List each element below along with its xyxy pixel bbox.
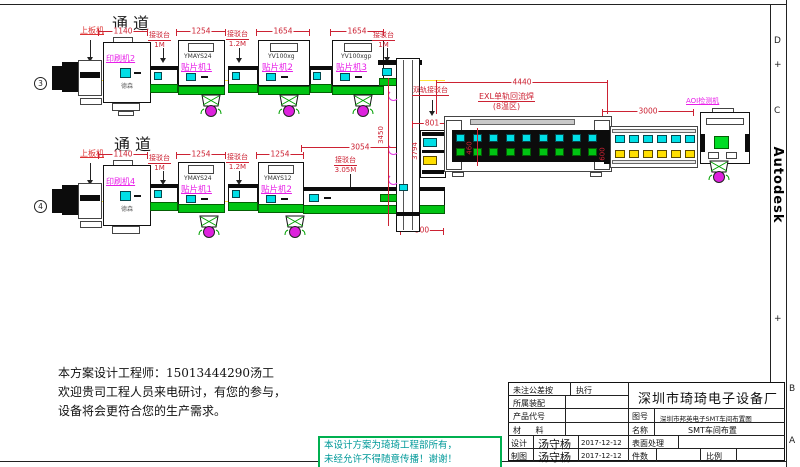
- pcb-dash: [281, 198, 288, 200]
- loader-machine-row2: [52, 189, 62, 213]
- pcb-dash: [201, 198, 208, 200]
- tb-line: [700, 448, 701, 461]
- reflow-zone-bottom: [555, 148, 564, 156]
- loader-arrow-row2: [90, 163, 91, 183]
- cooling-slot-cyan: [615, 135, 625, 143]
- mounter3-label-row1: 贴片机3: [336, 61, 367, 73]
- cad-drawing-canvas: D C + + B A Autodesk 通道 3 上板机 1140 印刷机2 …: [0, 0, 800, 467]
- pcb-marker: [340, 73, 350, 81]
- tb-draft-label: 制图: [511, 451, 527, 462]
- shuttle-bar: [422, 132, 444, 136]
- dim-3450-vertical: 3450: [377, 126, 385, 144]
- long-connector-label-row2: 接驳台3.05M: [334, 156, 357, 175]
- pcb-marker: [120, 191, 131, 201]
- reflow-zone-bottom: [522, 148, 531, 156]
- cooling-slot-yellow: [643, 150, 653, 158]
- conveyor-top-bar: [303, 187, 445, 191]
- pcb-marker: [313, 72, 321, 80]
- connector3-label-row1: 接驳台1M: [372, 31, 395, 50]
- tb-design-date: 2017-12-12: [581, 439, 622, 447]
- aoi-cart: [706, 160, 732, 184]
- tb-line: [678, 435, 679, 448]
- loader-machine-row1: [52, 66, 62, 90]
- cooling-bottom-rail: [612, 160, 696, 164]
- mounter1-label-row1: 贴片机1: [181, 61, 212, 73]
- conveyor-top-bar: [228, 184, 258, 188]
- cooling-slot-cyan: [671, 135, 681, 143]
- pcb-marker: [232, 72, 240, 80]
- reflow-label: EXL单轨回流焊(8温区): [478, 92, 535, 111]
- mounter2-model-row2: YMAYS12: [264, 175, 292, 182]
- frame-top-line: [0, 4, 786, 5]
- conveyor-top-bar: [150, 66, 178, 70]
- printer-brand-row2: 德森: [121, 204, 133, 213]
- aoi-top-bar: [706, 118, 744, 125]
- pcb-marker: [266, 195, 276, 203]
- tb-company: 深圳市琦琦电子设备厂: [638, 388, 778, 407]
- conveyor-green-rail: [178, 204, 225, 213]
- connector1-arrow-row2: [163, 171, 164, 183]
- tb-product-code: 产品代号: [513, 411, 545, 422]
- dim-3794-vertical: 3794: [411, 142, 419, 160]
- zone-plus-top: +: [774, 60, 782, 70]
- printer-label-row2: 印刷机4: [106, 176, 135, 187]
- loader-machine-row1: [78, 60, 102, 96]
- dim-3000-cooling: 3000: [602, 111, 694, 112]
- pcb-marker: [309, 194, 319, 202]
- conveyor-green-rail: [150, 202, 178, 211]
- feeder-cart: [350, 94, 376, 118]
- reflow-zone-bottom: [489, 148, 498, 156]
- connector2-label-row2: 接驳台1.2M: [226, 153, 249, 172]
- cooling-slot-yellow: [629, 150, 639, 158]
- reflow-zone-bottom: [572, 148, 581, 156]
- loader-machine-row2: [78, 183, 102, 219]
- connector2-arrow-row2: [239, 171, 240, 183]
- reflow-zone-bottom: [588, 148, 597, 156]
- reflow-zone-top: [572, 134, 581, 142]
- mounter-monitor: [270, 43, 298, 52]
- tb-tolerance: 未注公差按: [513, 385, 553, 396]
- tb-fig-number: 深圳市邦英电子SMT车间布置图: [660, 413, 752, 423]
- mounter1-model-row1: YMAYS24: [184, 53, 212, 60]
- pcb-dash: [134, 195, 141, 197]
- printer-label-row1: 印刷机2: [106, 53, 135, 64]
- mounter1-model-row2: YMAYS24: [184, 175, 212, 182]
- feeder-cart: [196, 215, 222, 239]
- tb-line: [736, 448, 737, 461]
- note-line2: 欢迎贵司工程人员来电研讨，有您的参与，: [58, 383, 286, 402]
- reflow-leg: [590, 172, 602, 177]
- connector1-label-row1: 接驳台1M: [148, 31, 171, 50]
- pcb-dash: [324, 197, 331, 199]
- reflow-zone-bottom: [506, 148, 515, 156]
- tb-design-label: 设计: [511, 438, 527, 449]
- pcb-marker: [266, 73, 276, 81]
- tb-line: [654, 408, 655, 435]
- cooling-slot-yellow: [685, 150, 695, 158]
- dim-1254-row2a: 1254: [176, 154, 226, 155]
- printer-brand-row1: 德森: [121, 81, 133, 90]
- zone-letter-b: B: [789, 384, 795, 394]
- mounter3-model-row1: YV100xgp: [341, 53, 371, 60]
- mounter-monitor: [268, 165, 294, 174]
- mounter1-label-row2: 贴片机1: [181, 183, 212, 195]
- mounter-monitor: [344, 43, 372, 52]
- aoi-side-bar: [745, 134, 750, 152]
- cooling-top-rail: [612, 129, 696, 133]
- dim-1654-row1a: 1654: [256, 31, 310, 32]
- mounter-monitor: [188, 165, 214, 174]
- reflow-zone-top: [456, 134, 465, 142]
- vertical-rail: [403, 60, 404, 230]
- pcb-dash: [134, 72, 141, 74]
- pcb-dash: [355, 76, 362, 78]
- conveyor-green-rail: [258, 204, 304, 213]
- reflow-zone-bottom: [539, 148, 548, 156]
- zone-letter-d: D: [774, 36, 781, 46]
- designer-note: 本方案设计工程师：15013444290汤工 欢迎贵司工程人员来电研讨，有您的参…: [58, 364, 286, 421]
- conveyor-top-bar: [228, 66, 258, 70]
- loader-machine-row2: [80, 221, 102, 228]
- aoi-base: [726, 152, 737, 159]
- pcb-marker: [186, 195, 196, 203]
- aoi-base: [708, 152, 719, 159]
- mounter-monitor: [188, 43, 214, 52]
- connector2-label-row1: 接驳台1.2M: [226, 30, 249, 49]
- loader-machine-row1: [80, 72, 100, 78]
- loader-machine-row2: [80, 195, 100, 201]
- dim-4440-reflow: 4440: [436, 82, 608, 83]
- stamp-line2: 未经允许不得随意传播！谢谢！: [324, 453, 496, 467]
- cooling-slot-cyan: [643, 135, 653, 143]
- feeder-cart: [282, 215, 308, 239]
- pcb-marker: [399, 184, 408, 191]
- mounter2-model-row1: YV100xg: [268, 53, 295, 60]
- pcb-marker: [186, 73, 196, 81]
- shuttle-bar: [422, 170, 444, 174]
- pcb-marker: [120, 68, 131, 78]
- corner-bottom-bar: [396, 212, 420, 216]
- reflow-zone-bottom: [456, 148, 465, 156]
- tb-assembly: 所属装配: [513, 398, 545, 409]
- loader-arrow-row1: [90, 40, 91, 60]
- autodesk-watermark: Autodesk: [769, 120, 785, 250]
- dim-ext-line: [607, 86, 608, 114]
- flow-arrow-arc: [388, 144, 399, 155]
- reflow-zone-top: [489, 134, 498, 142]
- tb-line: [508, 408, 785, 409]
- printer-base-row1: [118, 111, 134, 116]
- loader-machine-row1: [62, 62, 78, 92]
- printer-base-row2: [112, 226, 140, 234]
- tb-execute: 执行: [576, 385, 592, 396]
- cooling-slot-yellow: [615, 150, 625, 158]
- dim-460-vertical: 460: [466, 141, 474, 154]
- zone-letter-a: A: [789, 436, 795, 446]
- tb-name-label: 名称: [632, 425, 648, 436]
- pcb-marker: [154, 190, 162, 198]
- pcb-marker: [382, 68, 392, 76]
- cooling-slot-yellow: [657, 150, 667, 158]
- tb-name-value: SMT车间布置: [688, 425, 737, 436]
- reflow-top-rail: [470, 119, 575, 125]
- tb-qty: 件数: [632, 451, 648, 462]
- dim-600-vertical: 600: [599, 147, 607, 160]
- connector1-arrow-row1: [163, 48, 164, 61]
- copyright-stamp: 本设计方案为琦琦工程部所有， 未经允许不得随意传播！谢谢！: [318, 436, 502, 467]
- tb-material: 材 料: [513, 425, 550, 436]
- zone-plus-mid: +: [774, 314, 782, 324]
- pcb-dash: [201, 76, 208, 78]
- flow-arrow-arc: [388, 174, 399, 185]
- tb-draft-name: 汤守杨: [538, 449, 571, 465]
- vdim-line: [477, 128, 478, 166]
- tb-draft-date: 2017-12-12: [581, 452, 622, 460]
- mounter2-label-row2: 贴片机2: [261, 183, 292, 195]
- loader-machine-row2: [62, 185, 78, 215]
- tb-line: [628, 382, 629, 461]
- tb-scale: 比例: [706, 451, 722, 462]
- dim-ext-line: [436, 86, 437, 114]
- pcb-marker: [154, 72, 162, 80]
- cooling-slot-cyan: [657, 135, 667, 143]
- aoi-label: AOI检测机: [686, 96, 719, 106]
- dual-rail-label: 双轨接驳台: [412, 86, 449, 96]
- reflow-zone-top: [506, 134, 515, 142]
- conveyor-green-rail: [150, 84, 178, 93]
- dim-1140-row2: 1140: [98, 154, 148, 155]
- tb-surface: 表面处理: [632, 438, 664, 449]
- reflow-zone-top: [555, 134, 564, 142]
- connector1-label-row2: 接驳台1M: [148, 154, 171, 173]
- connector3-arrow-row1: [387, 48, 388, 60]
- pcb-marker-yellow: [423, 156, 437, 165]
- pcb-marker: [423, 138, 437, 147]
- conveyor-green-rail: [310, 84, 332, 93]
- tb-line: [533, 435, 534, 461]
- conveyor-green-rail: [228, 84, 258, 93]
- dim-1254-row2b: 1254: [256, 154, 304, 155]
- tb-line: [570, 382, 571, 395]
- tb-fig-label: 图号: [632, 411, 648, 422]
- mounter2-label-row1: 贴片机2: [262, 61, 293, 73]
- tb-line: [565, 395, 566, 435]
- cooling-slot-yellow: [671, 150, 681, 158]
- printer-base-row1: [112, 103, 140, 111]
- cooling-slot-cyan: [629, 135, 639, 143]
- stamp-line1: 本设计方案为琦琦工程部所有，: [324, 439, 496, 453]
- reflow-zone-top: [522, 134, 531, 142]
- connector2-arrow-row1: [239, 48, 240, 61]
- frame-right-outer-line: [786, 0, 787, 467]
- tb-line: [578, 435, 579, 461]
- shuttle-bar: [422, 150, 444, 153]
- pcb-dash: [281, 76, 288, 78]
- dual-rail-arrow: [432, 100, 433, 114]
- reflow-zone-top: [588, 134, 597, 142]
- dim-1254-row1: 1254: [176, 31, 226, 32]
- reflow-leg: [452, 172, 464, 177]
- dim-1140-row1: 1140: [98, 31, 148, 32]
- vdim-line: [388, 78, 389, 226]
- conveyor-green-rail: [228, 202, 258, 211]
- feeder-cart: [276, 94, 302, 118]
- line-marker-row1: 3: [34, 77, 47, 90]
- aoi-stage: [714, 136, 729, 149]
- line-marker-row2: 4: [34, 200, 47, 213]
- cooling-slot-cyan: [685, 135, 695, 143]
- note-line3: 设备将会更符合您的生产需求。: [58, 402, 286, 421]
- zone-letter-c: C: [774, 106, 780, 116]
- feeder-cart: [198, 94, 224, 118]
- aoi-side-bar: [700, 134, 705, 152]
- flow-arrow-arc: [388, 90, 399, 101]
- tb-line: [656, 448, 657, 461]
- pcb-marker: [232, 190, 240, 198]
- note-line1: 本方案设计工程师：15013444290汤工: [58, 364, 286, 383]
- reflow-zone-top: [539, 134, 548, 142]
- loader-machine-row1: [80, 98, 102, 105]
- conveyor-top-bar: [310, 66, 332, 70]
- conveyor-green-rail: [303, 205, 445, 214]
